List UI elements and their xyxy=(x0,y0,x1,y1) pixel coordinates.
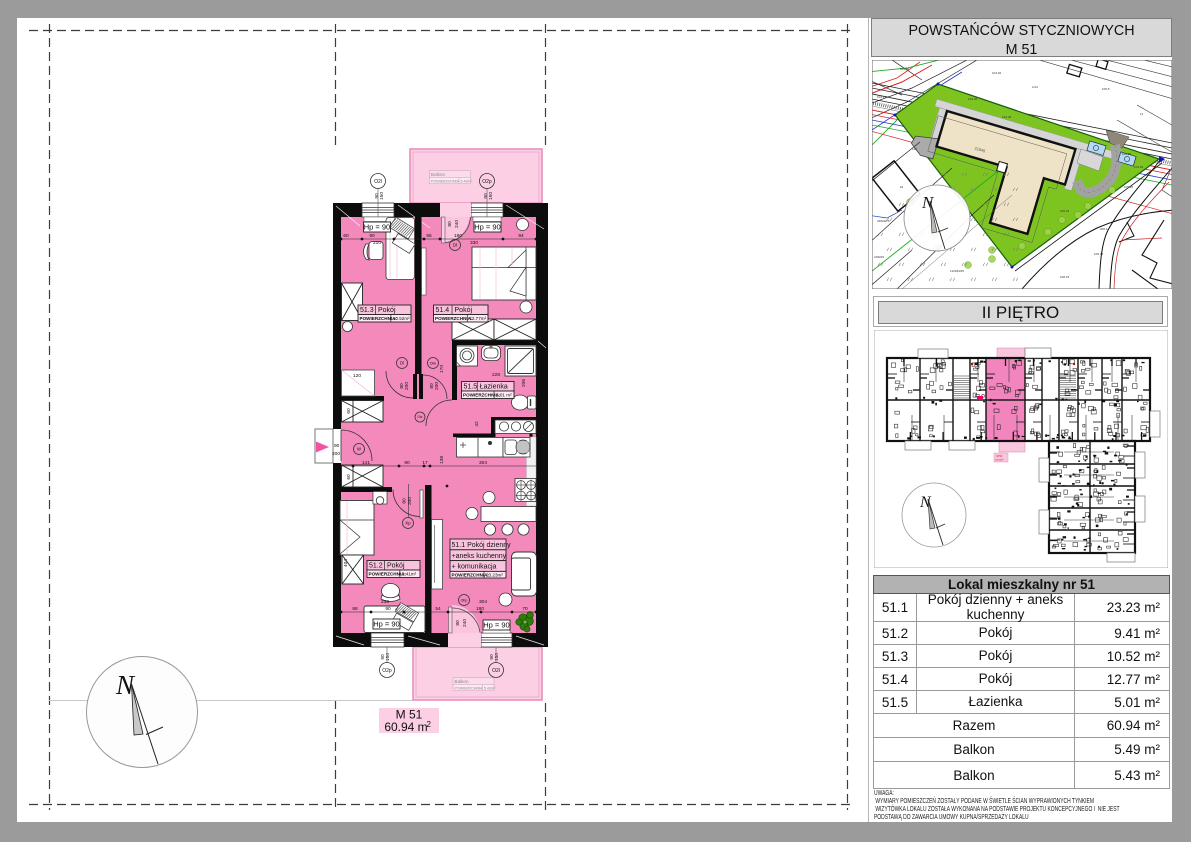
svg-text:W: W xyxy=(357,447,361,452)
svg-text:Hp = 90: Hp = 90 xyxy=(474,222,500,231)
svg-text:70: 70 xyxy=(522,606,528,612)
svg-text:12.77m²: 12.77m² xyxy=(469,316,486,321)
svg-text:O2l: O2l xyxy=(492,668,500,674)
svg-text:88: 88 xyxy=(352,606,358,612)
svg-text:51.2: 51.2 xyxy=(369,563,383,570)
svg-text:60: 60 xyxy=(346,474,352,480)
svg-text:90: 90 xyxy=(334,443,340,449)
svg-text:POWIERZCHNIA:: POWIERZCHNIA: xyxy=(435,316,473,321)
svg-text:5.43m²: 5.43m² xyxy=(484,686,496,690)
svg-text:206.1: 206.1 xyxy=(1100,227,1108,231)
svg-text:Pokój: Pokój xyxy=(378,307,396,314)
svg-text:200: 200 xyxy=(404,382,410,390)
svg-text:9.41m²: 9.41m² xyxy=(402,572,417,577)
svg-text:Dl: Dl xyxy=(400,361,404,366)
svg-text:O2p: O2p xyxy=(482,179,492,185)
svg-text:10.52m²: 10.52m² xyxy=(393,316,410,321)
svg-text:200: 200 xyxy=(434,382,440,390)
svg-text:120: 120 xyxy=(353,373,361,379)
svg-text:M 51: M 51 xyxy=(997,454,1003,458)
svg-text:51.5: 51.5 xyxy=(464,384,478,391)
svg-text:104.35: 104.35 xyxy=(968,97,978,101)
svg-text:240: 240 xyxy=(462,619,468,627)
svg-text:150: 150 xyxy=(488,192,494,200)
svg-text:Dlw: Dlw xyxy=(430,361,436,365)
svg-text:236: 236 xyxy=(381,599,389,605)
svg-text:Pokój: Pokój xyxy=(455,307,473,314)
svg-text:105.25: 105.25 xyxy=(1124,185,1134,189)
svg-text:Balkon: Balkon xyxy=(455,679,469,684)
svg-text:141: 141 xyxy=(362,460,370,466)
svg-text:51.3: 51.3 xyxy=(360,307,374,314)
svg-text:60: 60 xyxy=(346,408,352,414)
svg-text:330: 330 xyxy=(470,240,478,246)
svg-text:5.49m²: 5.49m² xyxy=(461,179,473,183)
svg-text:17: 17 xyxy=(422,460,428,466)
svg-text:60.94 m: 60.94 m xyxy=(384,720,427,734)
svg-text:Łazienka: Łazienka xyxy=(480,384,508,391)
svg-text:180: 180 xyxy=(476,606,484,612)
svg-text:80: 80 xyxy=(455,620,461,626)
svg-text:218229: 218229 xyxy=(874,255,884,259)
svg-text:O2l: O2l xyxy=(374,179,382,185)
svg-text:150: 150 xyxy=(379,192,385,200)
svg-text:51.1 Pokój dzienny: 51.1 Pokój dzienny xyxy=(452,542,512,549)
svg-text:90: 90 xyxy=(404,460,410,466)
svg-text:106.48: 106.48 xyxy=(1094,252,1104,256)
svg-text:Kp: Kp xyxy=(405,521,411,526)
svg-text:138: 138 xyxy=(439,456,445,464)
svg-text:POWIERZCHNIA: POWIERZCHNIA xyxy=(455,686,484,690)
svg-text:104.50: 104.50 xyxy=(1134,165,1144,169)
svg-text:60.94m²: 60.94m² xyxy=(996,459,1004,462)
svg-text:51.4: 51.4 xyxy=(436,307,450,314)
svg-text:228: 228 xyxy=(492,372,500,378)
svg-text:90: 90 xyxy=(385,606,391,612)
svg-text:42: 42 xyxy=(474,421,480,427)
svg-text:54: 54 xyxy=(435,606,441,612)
svg-text:Dłz: Dłz xyxy=(418,415,423,419)
svg-text:11218/225: 11218/225 xyxy=(950,269,964,273)
svg-text:104.55: 104.55 xyxy=(1122,152,1132,156)
svg-text:210: 210 xyxy=(373,240,381,246)
svg-text:Balkon: Balkon xyxy=(431,172,445,177)
svg-text:200: 200 xyxy=(407,497,413,505)
svg-text:94: 94 xyxy=(518,233,524,239)
svg-text:Dł: Dł xyxy=(453,243,457,248)
svg-text:Pokój: Pokój xyxy=(387,563,405,570)
svg-text:O2p: O2p xyxy=(382,668,392,674)
svg-text:304: 304 xyxy=(479,599,487,605)
svg-text:104.66: 104.66 xyxy=(900,67,910,71)
svg-text:180: 180 xyxy=(454,233,462,239)
svg-text:60: 60 xyxy=(343,233,349,239)
svg-text:108.19: 108.19 xyxy=(1060,275,1070,279)
svg-text:Obp: Obp xyxy=(461,598,468,602)
svg-text:Hp = 90: Hp = 90 xyxy=(364,222,390,231)
svg-text:POWIERZCHNIA:: POWIERZCHNIA: xyxy=(360,316,398,321)
svg-text:56: 56 xyxy=(426,233,432,239)
svg-text:218228.5: 218228.5 xyxy=(877,219,890,223)
svg-text:104.62: 104.62 xyxy=(992,71,1002,75)
svg-text:304: 304 xyxy=(479,460,487,466)
svg-text:80: 80 xyxy=(402,498,408,504)
svg-text:150: 150 xyxy=(494,653,500,661)
svg-text:POWIERZCHNIA:: POWIERZCHNIA: xyxy=(452,573,490,578)
svg-text:118: 118 xyxy=(912,147,917,151)
svg-text:+ komunikacja: + komunikacja xyxy=(452,564,497,571)
svg-text:240: 240 xyxy=(454,220,460,228)
svg-text:2.04: 2.04 xyxy=(1032,85,1038,89)
svg-text:k2: k2 xyxy=(900,185,904,189)
svg-text:170: 170 xyxy=(439,365,445,373)
svg-text:90: 90 xyxy=(369,233,375,239)
svg-text:104.40: 104.40 xyxy=(1002,115,1012,119)
svg-text:5.01 m²: 5.01 m² xyxy=(496,393,512,398)
svg-text:105.5: 105.5 xyxy=(1102,87,1110,91)
svg-text:200: 200 xyxy=(332,451,340,457)
svg-text:80: 80 xyxy=(447,221,453,227)
svg-text:23.23m²: 23.23m² xyxy=(486,573,503,578)
svg-text:150: 150 xyxy=(385,653,391,661)
svg-text:206: 206 xyxy=(521,379,527,387)
svg-text:+aneks kuchenny: +aneks kuchenny xyxy=(452,553,507,560)
svg-text:404: 404 xyxy=(343,559,349,567)
svg-text:2: 2 xyxy=(427,720,432,729)
svg-text:11: 11 xyxy=(1140,112,1143,116)
svg-text:POWIERZCHNIA:: POWIERZCHNIA: xyxy=(369,572,407,577)
svg-text:Hp = 90: Hp = 90 xyxy=(373,619,399,628)
svg-text:104.17: 104.17 xyxy=(877,95,887,99)
svg-text:Hp = 90: Hp = 90 xyxy=(483,620,509,629)
svg-text:POWIERZCHNIA: POWIERZCHNIA xyxy=(431,179,460,183)
svg-text:105.43: 105.43 xyxy=(1060,209,1070,213)
